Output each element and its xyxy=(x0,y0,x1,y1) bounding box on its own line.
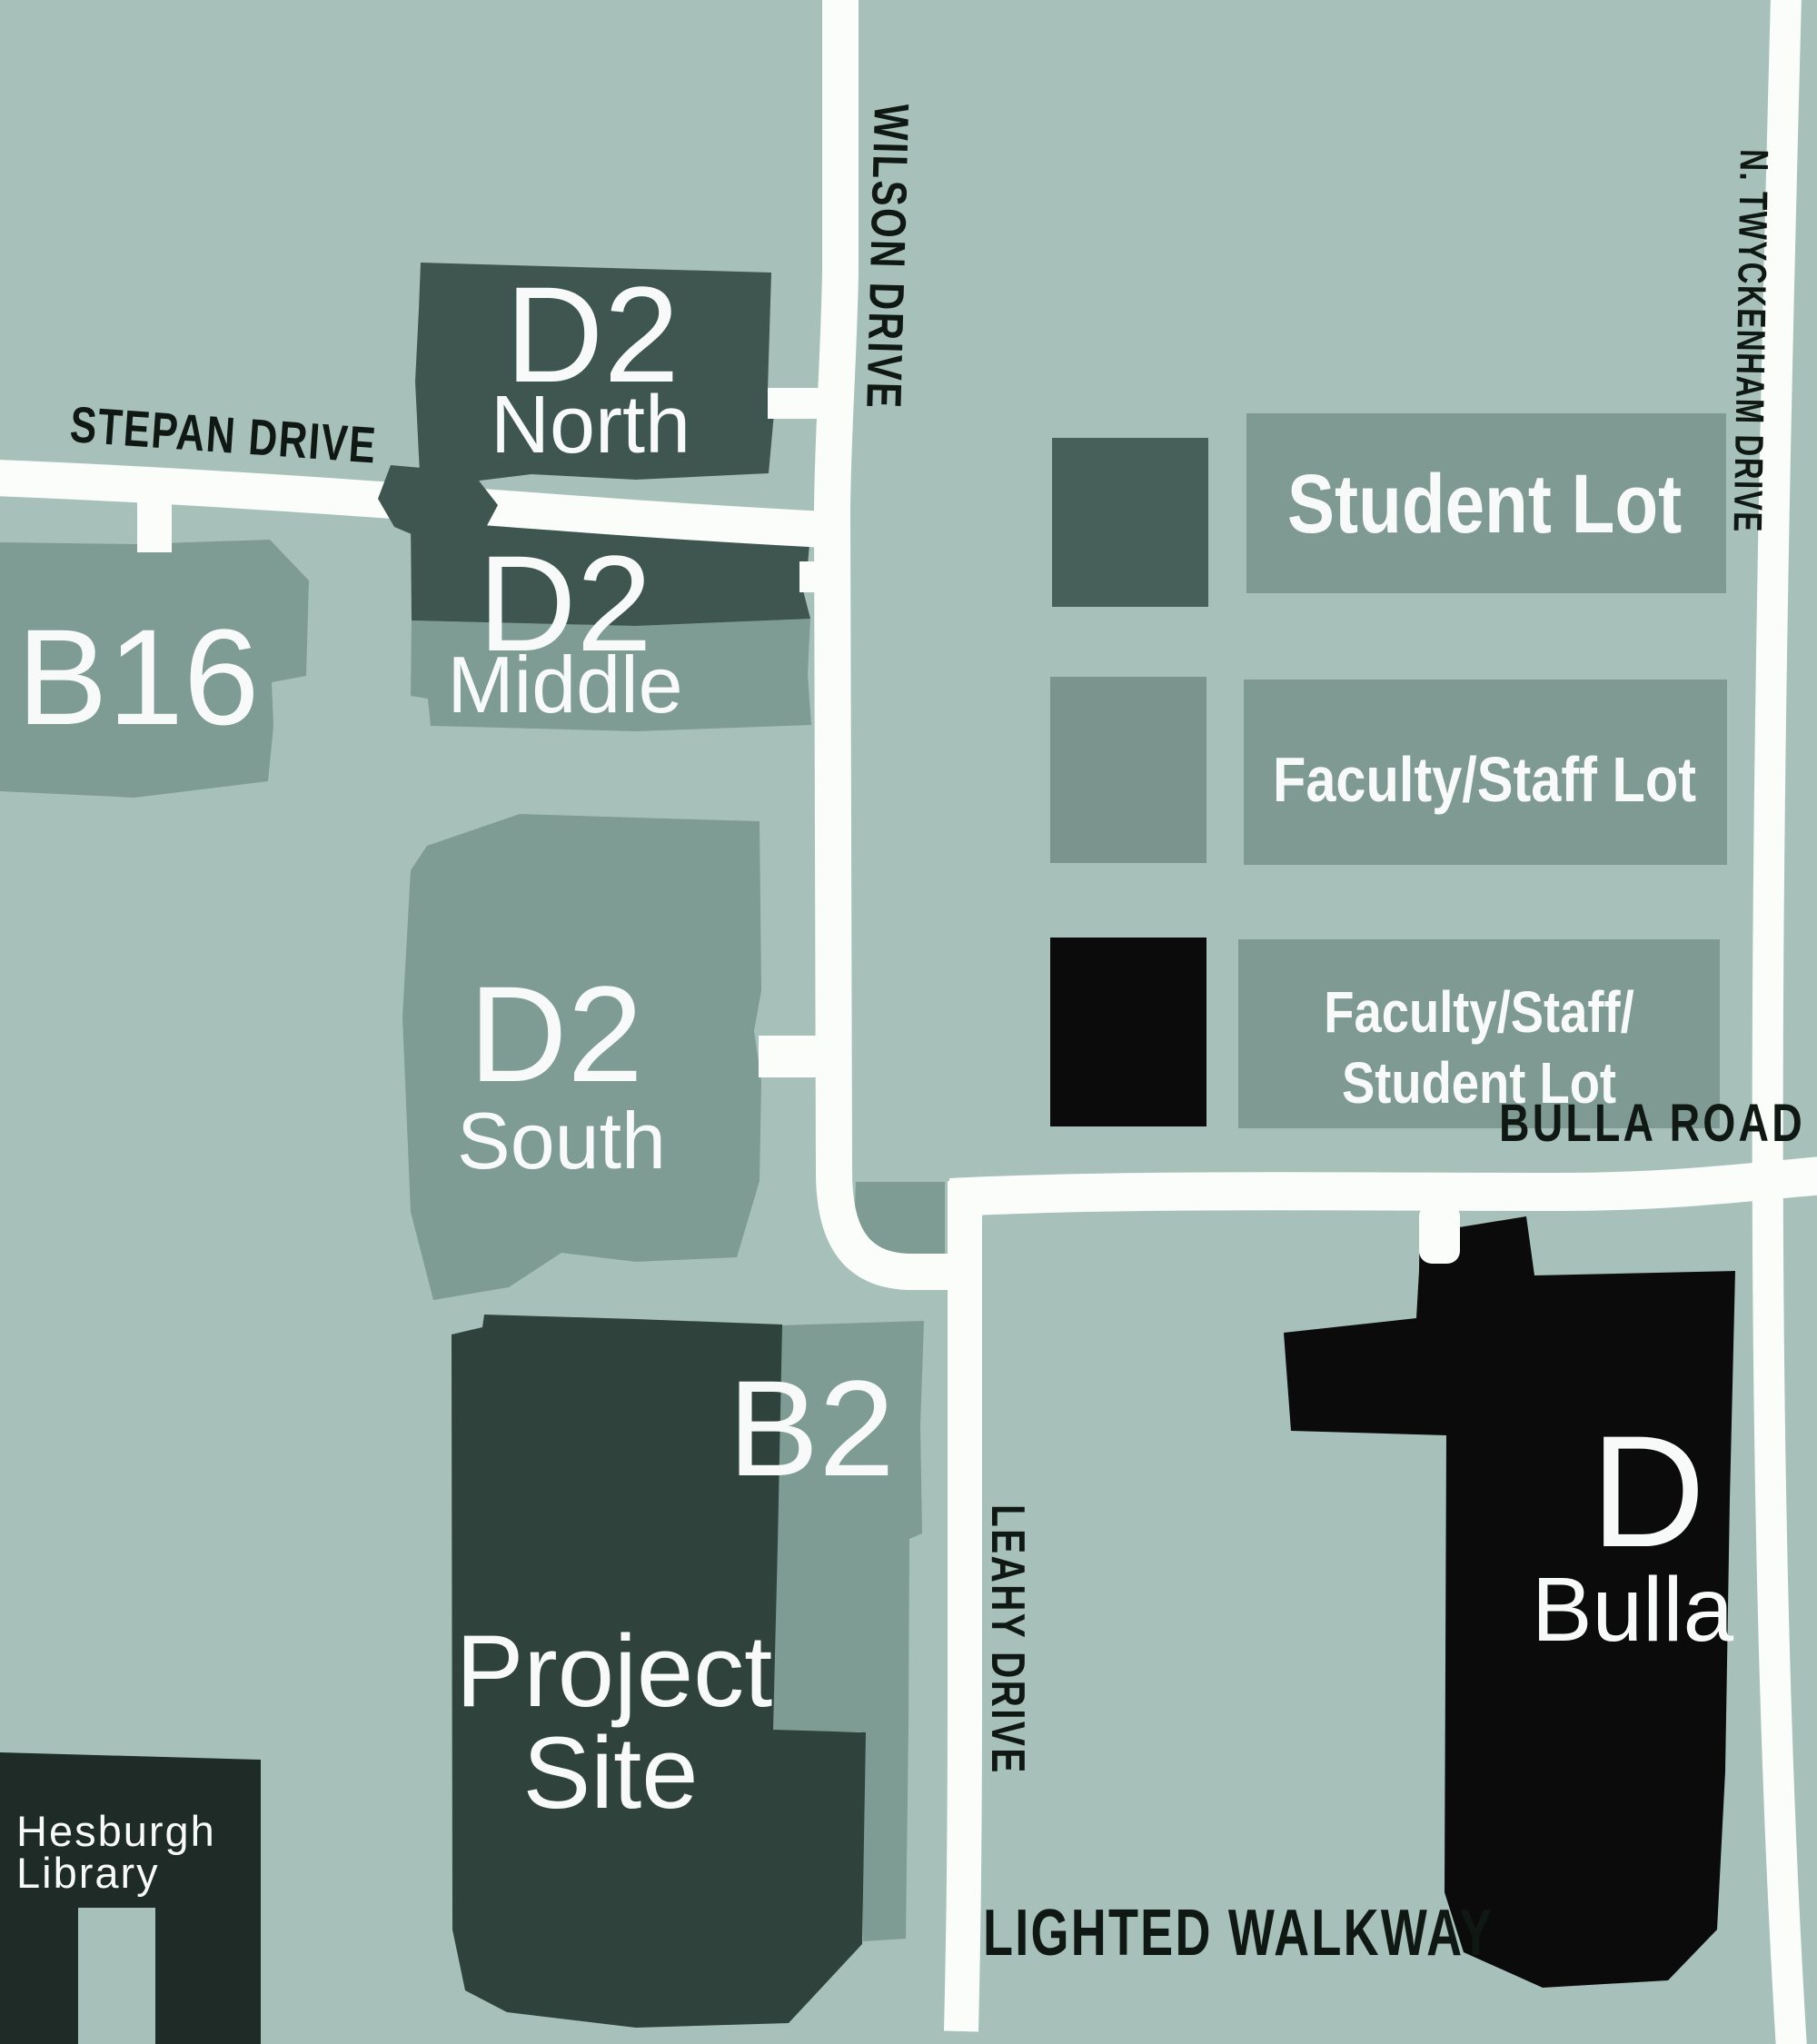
legend-faculty-swatch xyxy=(1050,677,1206,863)
lot-b16-label: B16 xyxy=(17,600,260,753)
project-site-label-line1: Project xyxy=(456,1614,773,1728)
lot-d2-middle-sublabel: Middle xyxy=(447,640,682,729)
lot-bulla-label: D xyxy=(1591,1404,1705,1581)
lighted-walkway-label: LIGHTED WALKWAY xyxy=(983,1897,1494,1970)
hesburgh-library-label-line2: Library xyxy=(16,1849,160,1897)
legend-combo-label-line1: Faculty/Staff/ xyxy=(1324,979,1633,1045)
legend: Student Lot Faculty/Staff Lot Faculty/St… xyxy=(1050,413,1727,1128)
lot-d2-south-sublabel: South xyxy=(457,1096,666,1186)
road-bulla-road xyxy=(950,1176,1817,1197)
lot-d2-north-sublabel: North xyxy=(491,380,690,471)
campus-parking-map: Student Lot Faculty/Staff Lot Faculty/St… xyxy=(0,0,1817,2044)
lot-bulla-sublabel: Bulla xyxy=(1532,1559,1734,1661)
legend-student-label: Student Lot xyxy=(1287,458,1682,551)
legend-student-swatch xyxy=(1052,438,1208,607)
legend-combo-swatch xyxy=(1050,938,1206,1126)
road-wilson-drive-label: WILSON DRIVE xyxy=(856,104,918,411)
road-leahy-drive-label: LEAHY DRIVE xyxy=(982,1504,1035,1775)
legend-faculty-label: Faculty/Staff Lot xyxy=(1273,743,1696,815)
bulla-lot-entrance-driveway xyxy=(1419,1204,1460,1264)
road-leahy-drive xyxy=(961,1181,965,2031)
project-site-label-line2: Site xyxy=(523,1716,699,1830)
lot-b2-label: B2 xyxy=(728,1352,894,1504)
road-twyckenham-drive-label: N. TWYCKENHAM DRIVE xyxy=(1724,149,1775,533)
road-bulla-road-label: BULLA ROAD xyxy=(1499,1094,1805,1153)
map-canvas: Student Lot Faculty/Staff Lot Faculty/St… xyxy=(0,0,1817,2044)
lot-d2-south-label: D2 xyxy=(469,958,643,1110)
